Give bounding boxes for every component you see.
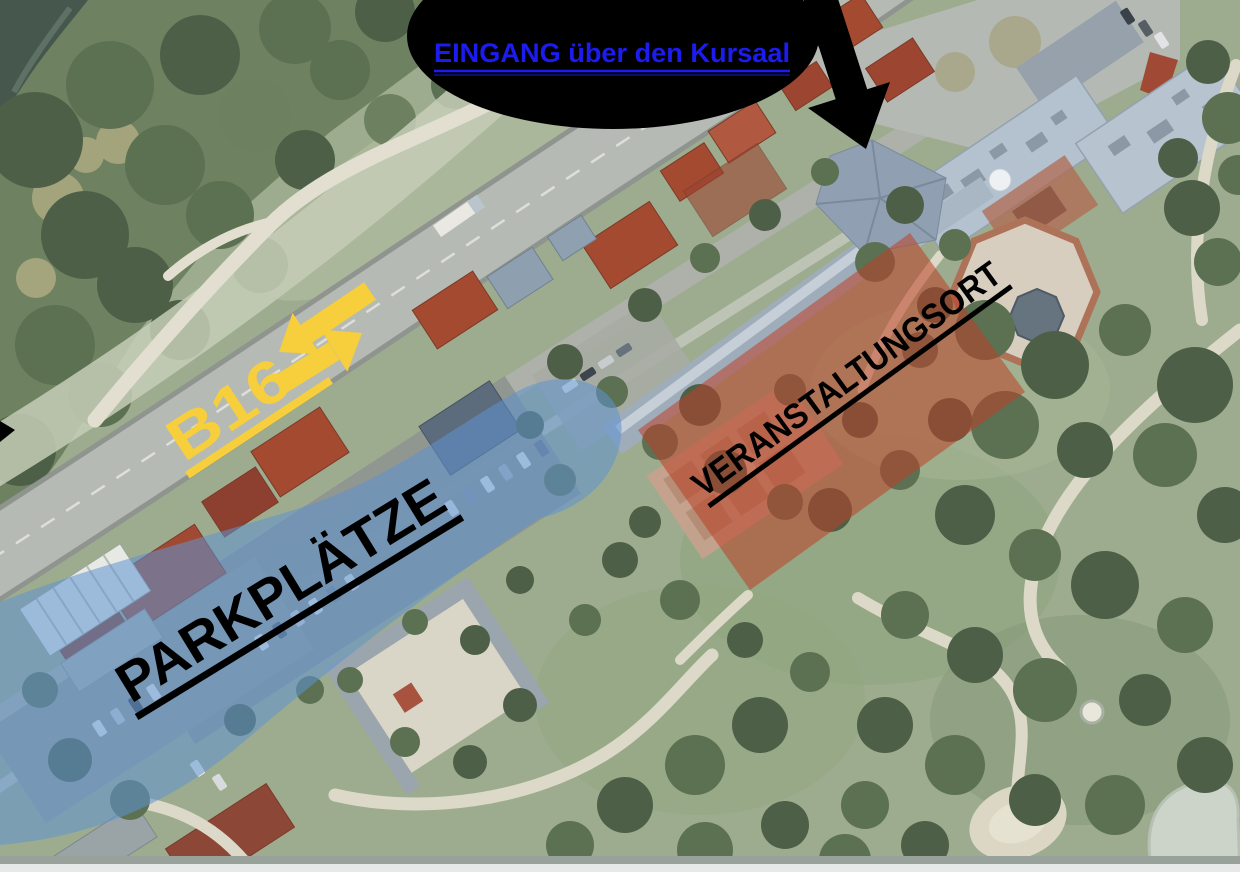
entrance-label: EINGANG über den Kursaal bbox=[434, 38, 790, 68]
site-map: B16 PARKPLÄTZE VERANSTALTUNGSORT EINGANG… bbox=[0, 0, 1240, 872]
